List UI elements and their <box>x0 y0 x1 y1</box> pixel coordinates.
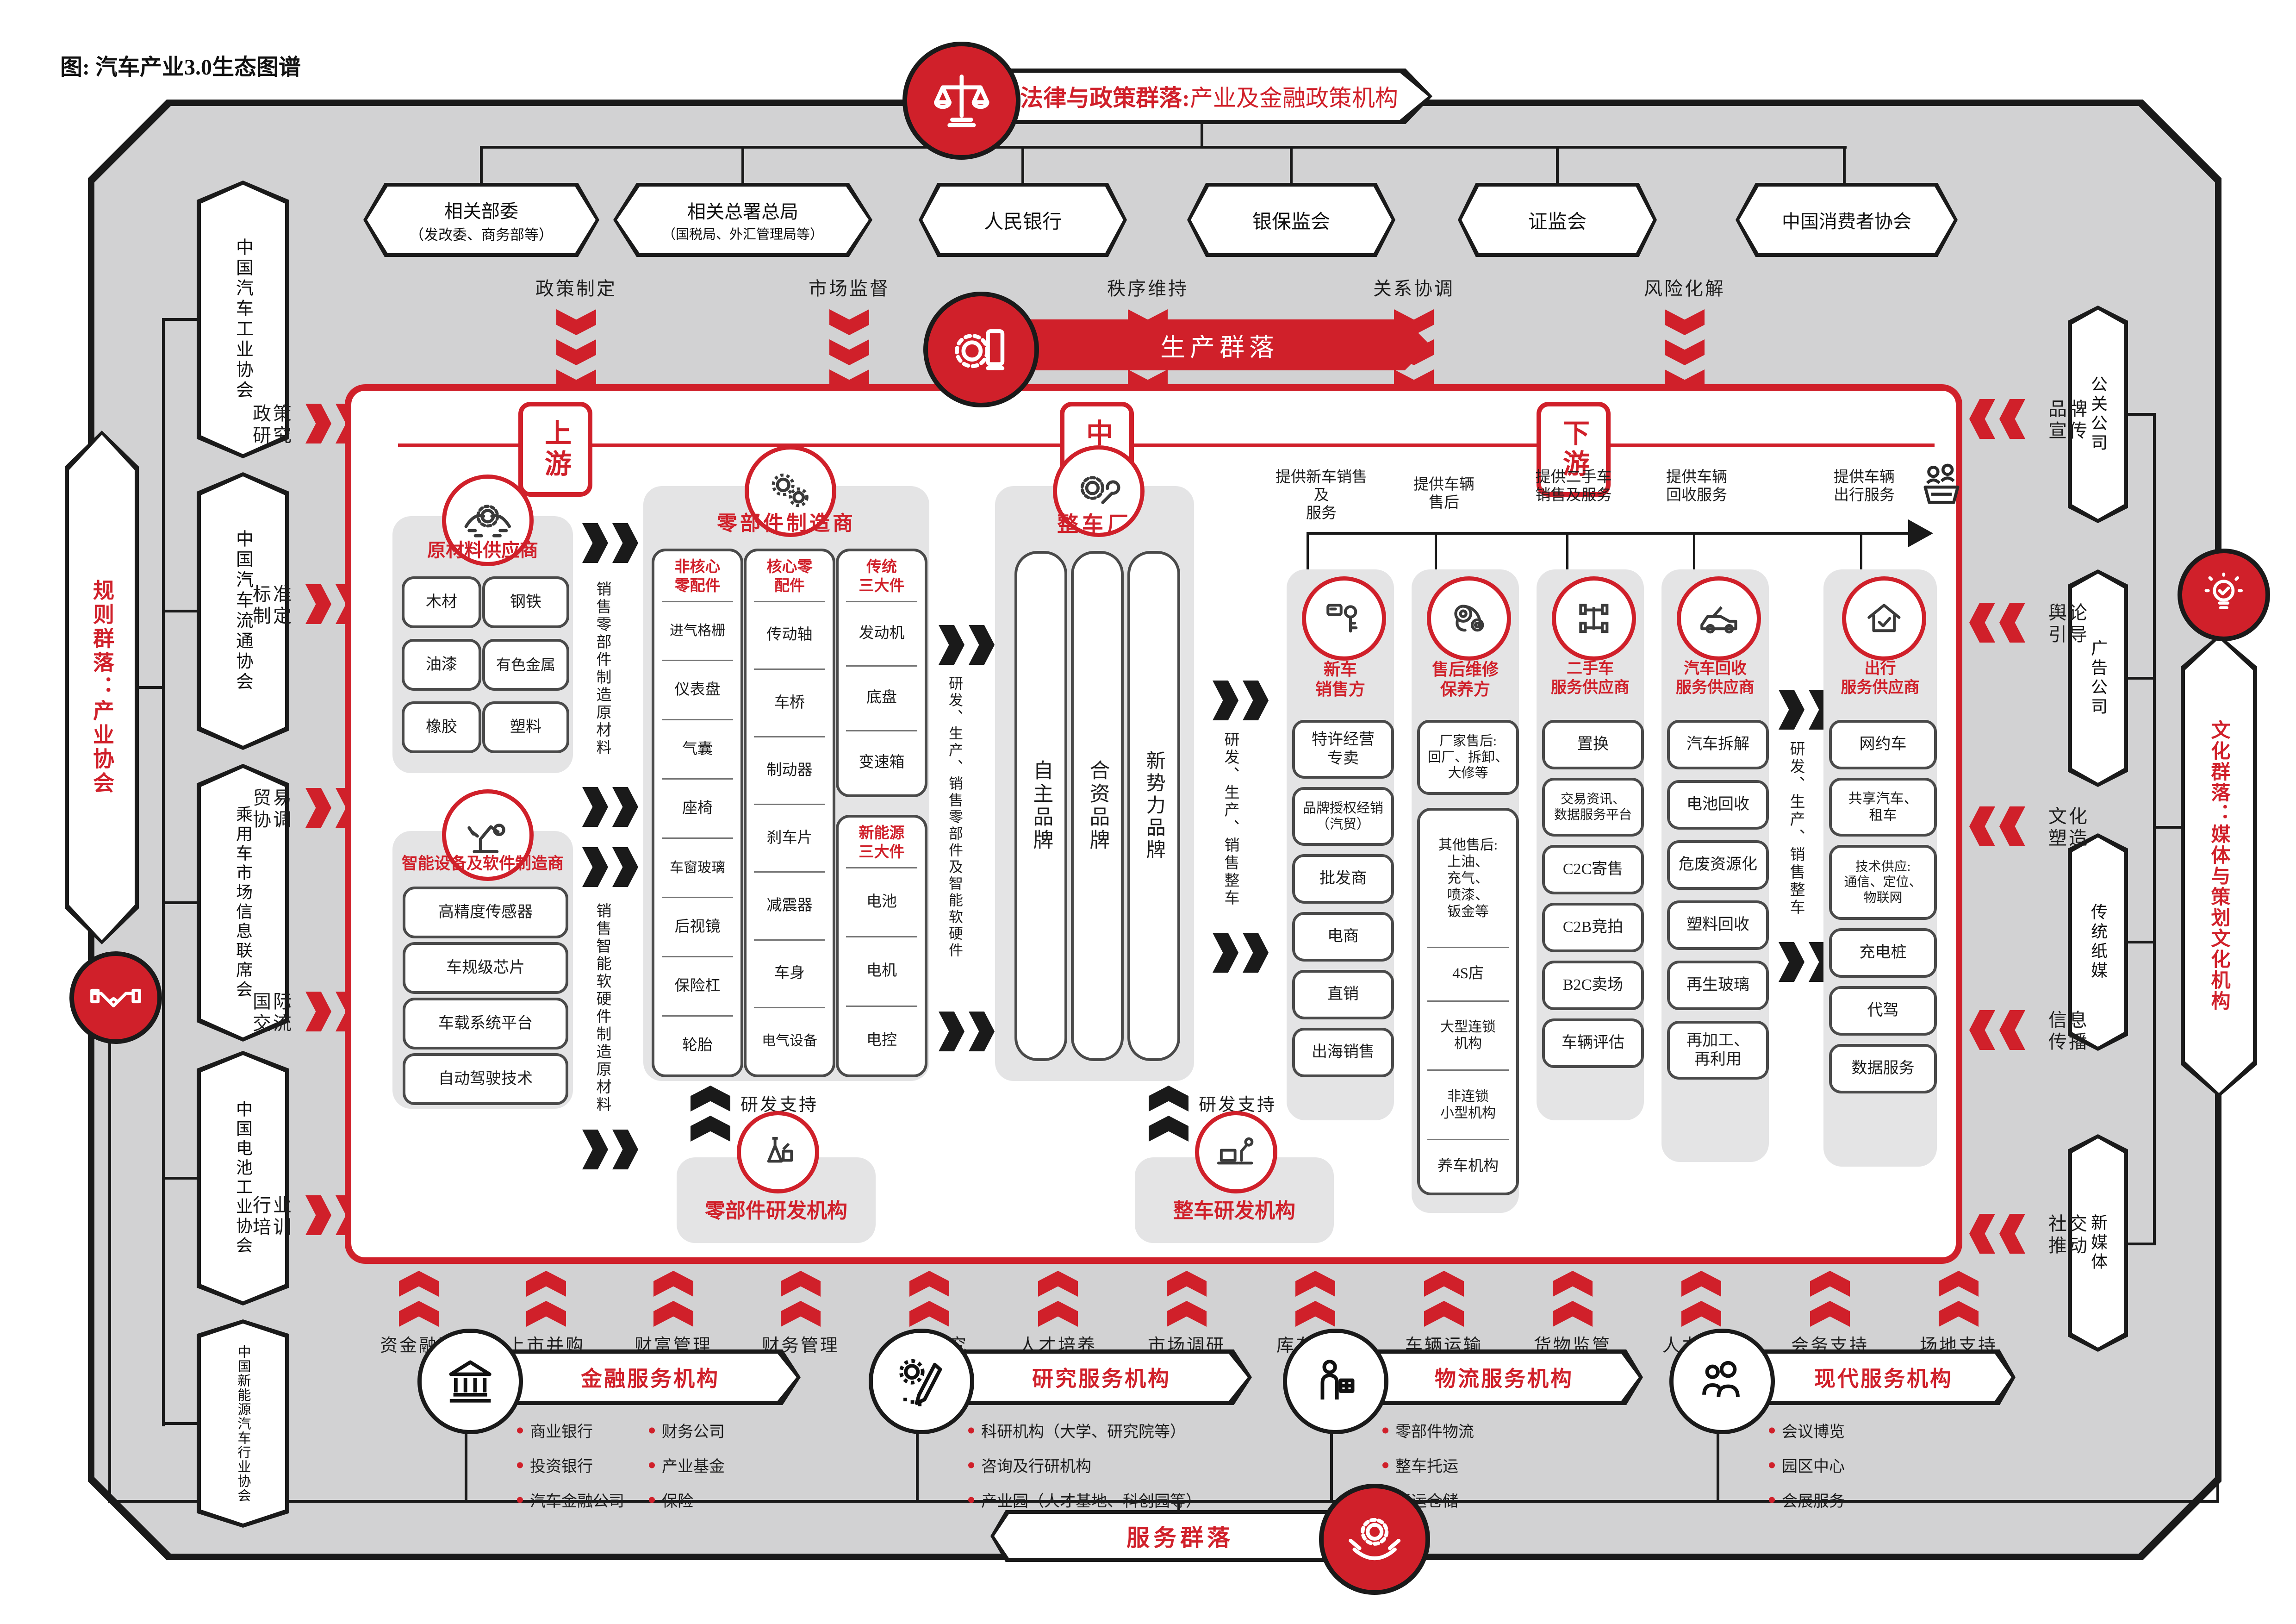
recycle-item: 电池回收 <box>1667 780 1769 830</box>
org-csrc: 证监会 <box>1458 183 1657 257</box>
research-title: 研究服务机构 <box>1032 1362 1171 1393</box>
finance-item: 汽车金融公司 <box>516 1482 624 1517</box>
oem-brand-jv: 合资品牌 <box>1071 551 1124 1061</box>
people-icon <box>1669 1329 1775 1434</box>
func-trade-coordination: 贸易 协调 <box>238 787 308 831</box>
scales-icon <box>902 42 1020 160</box>
smart-item: 高精度传感器 <box>403 887 568 938</box>
modern-item: 园区中心 <box>1768 1448 1845 1482</box>
recycle-item: 危废资源化 <box>1667 840 1769 890</box>
law-policy-title-rest: 产业及金融政策机构 <box>1190 80 1398 113</box>
arrow-left-icon <box>1969 1214 2025 1254</box>
parts-title: 零部件制造商 <box>643 512 929 536</box>
rules-banner-label: 规则群落：产业协会 <box>87 579 117 796</box>
org-peoples-bank: 人民银行 <box>919 183 1127 257</box>
parts-item: 减震器 <box>754 871 825 939</box>
parts-item: 传动轴 <box>754 601 825 668</box>
mobility-item: 共享汽车、 租车 <box>1829 778 1937 837</box>
oem-title: 整车厂 <box>995 512 1194 537</box>
flask-robot-icon <box>737 1111 819 1193</box>
research-item: 咨询及行研机构 <box>967 1448 1201 1482</box>
stage-upstream: 上游 <box>518 402 592 497</box>
newcar-item: 出海销售 <box>1292 1028 1394 1077</box>
parts-item: 底盘 <box>846 665 917 730</box>
org-label: 中国消费者协会 <box>1782 206 1911 233</box>
newcar-title: 新车 销售方 <box>1287 660 1394 700</box>
raw-item: 有色金属 <box>482 639 569 691</box>
parts-item: 车身 <box>754 939 825 1007</box>
law-policy-title-bold: 法律与政策群落: <box>1020 80 1190 113</box>
rules-cluster-banner: 规则群落：产业协会 <box>65 431 139 944</box>
func-market-supervision: 市场监督 <box>780 278 919 300</box>
func-risk-resolution: 风险化解 <box>1615 278 1754 300</box>
culture-cluster-banner: 文化群落：媒体与策划文化机构 <box>2181 634 2257 1097</box>
assoc-nev: 中国新能源汽车行业协会 <box>197 1319 289 1528</box>
parts-item: 轮胎 <box>662 1015 733 1074</box>
ds-annotation: 提供车辆 回收服务 <box>1650 468 1743 505</box>
production-banner: 生产群落 <box>1009 319 1430 370</box>
aftersales-item: 厂家售后: 回厂、拆卸、 大修等 <box>1417 720 1519 795</box>
raw-item: 橡胶 <box>402 701 481 753</box>
func-standard-setting: 标准 制定 <box>238 583 308 627</box>
ds-annotation: 提供二手车 销售及服务 <box>1523 468 1624 505</box>
usedcar-item: C2C寄售 <box>1542 845 1644 894</box>
arrow-up-icon <box>1149 1086 1188 1142</box>
media-label: 传统纸媒 <box>2086 903 2110 981</box>
parts-item: 车桥 <box>754 668 825 736</box>
raw-material-title: 原材料供应商 <box>392 539 573 562</box>
arrow-up-icon <box>1038 1271 1078 1327</box>
arrow-down-icon <box>829 309 869 395</box>
usedcar-item: 交易资讯、 数据服务平台 <box>1542 778 1644 837</box>
parts-col-nev3: 新能源 三大件 电池 电机 电控 <box>836 815 927 1077</box>
org-label: 人民银行 <box>984 206 1062 234</box>
research-item: 科研机构（大学、研究院等） <box>967 1413 1201 1448</box>
org-label: 银保监会 <box>1252 206 1330 234</box>
assoc-label: 乘用车市场信息联席会 <box>231 806 255 1000</box>
logistics-item: 整车托运 <box>1381 1448 1474 1482</box>
recycle-title: 汽车回收 服务供应商 <box>1661 660 1769 698</box>
arrow-up-icon <box>526 1271 566 1327</box>
parts-item: 后视镜 <box>662 897 733 956</box>
assoc-battery: 中国电池工业协会 <box>197 1051 289 1305</box>
ds-annotation: 提供车辆 售后 <box>1402 476 1486 512</box>
parts-item: 车窗玻璃 <box>662 837 733 897</box>
logistics-banner: 物流服务机构 <box>1365 1349 1643 1405</box>
finance-item: 商业银行 <box>516 1413 624 1448</box>
org-sublabel: （国税局、外汇管理局等） <box>662 224 823 243</box>
mobility-title: 出行 服务供应商 <box>1823 660 1937 698</box>
modern-banner: 现代服务机构 <box>1752 1349 2016 1405</box>
smart-equipment-title: 智能设备及软件制造商 <box>392 854 573 874</box>
usedcar-item: B2C卖场 <box>1542 961 1644 1010</box>
media-label: 广告公司 <box>2086 639 2110 717</box>
raw-item: 钢铁 <box>482 576 569 628</box>
parts-item: 进气格栅 <box>662 601 733 660</box>
page-title: 图: 汽车产业3.0生态图谱 <box>60 49 301 81</box>
law-policy-banner: 法律与政策群落: 产业及金融政策机构 <box>986 69 1432 124</box>
handshake-icon <box>69 951 162 1044</box>
org-ministries: 相关部委（发改委、商务部等） <box>363 183 599 257</box>
arrow-right-icon <box>939 625 995 665</box>
arrow-left-icon <box>1969 1010 2025 1050</box>
oem-brand-own: 自主品牌 <box>1014 551 1067 1061</box>
lightbulb-check-icon <box>2178 549 2270 641</box>
arrow-right-icon <box>582 523 638 563</box>
oem-rnd-title: 整车研发机构 <box>1135 1199 1334 1224</box>
newcar-item: 特许经营 专卖 <box>1292 720 1394 779</box>
parts-item: 电机 <box>846 936 917 1006</box>
recycle-item: 塑料回收 <box>1667 900 1769 950</box>
func-info-spread: 信息 传播 <box>2034 1009 2103 1053</box>
arrow-down-icon <box>556 309 596 395</box>
parts-item: 发动机 <box>846 601 917 666</box>
func-intl-exchange: 国际 交流 <box>238 991 308 1034</box>
aftersales-group-item: 4S店 <box>1427 947 1509 1000</box>
mobility-item: 代驾 <box>1829 986 1937 1036</box>
func-policy-research: 政策 研究 <box>238 403 308 446</box>
raw-item: 油漆 <box>402 639 481 691</box>
org-label: 相关总署总局 <box>687 197 798 224</box>
org-label: 证监会 <box>1528 206 1587 234</box>
flow-smart-label: 销售智能软硬件制造原材料 <box>591 903 613 1114</box>
func-relation-coordination: 关系协调 <box>1344 278 1483 300</box>
culture-banner-label: 文化群落：媒体与策划文化机构 <box>2205 720 2233 1012</box>
parts-item: 仪表盘 <box>662 660 733 719</box>
consumers-icon <box>1911 461 1972 512</box>
arrow-up-icon <box>1810 1271 1850 1327</box>
rnd-support-label: 研发支持 <box>740 1095 893 1116</box>
parts-item: 变速箱 <box>846 730 917 795</box>
service-banner-label: 服务群落 <box>1126 1519 1234 1553</box>
arrow-right-icon <box>582 847 638 887</box>
aftersales-group-item: 非连锁 小型机构 <box>1427 1069 1509 1139</box>
mobility-item: 数据服务 <box>1829 1044 1937 1093</box>
func-brand-promotion: 品牌 宣传 <box>2034 398 2103 442</box>
arrow-right-icon <box>1213 681 1269 720</box>
logistics-item: 零部件物流 <box>1381 1413 1474 1448</box>
parts-col-header: 传统 三大件 <box>839 551 925 601</box>
org-cbirc: 银保监会 <box>1187 183 1395 257</box>
mobility-item: 技术供应: 通信、定位、 物联网 <box>1829 845 1937 920</box>
arrow-up-icon <box>1939 1271 1979 1327</box>
parts-item: 气囊 <box>662 719 733 778</box>
hands-service-icon <box>1319 1484 1430 1595</box>
arrow-up-icon <box>909 1271 949 1327</box>
stage-label: 上游 <box>536 419 575 480</box>
chassis-icon <box>1552 576 1636 661</box>
newcar-item: 电商 <box>1292 912 1394 962</box>
modern-title: 现代服务机构 <box>1814 1362 1953 1393</box>
newcar-item: 直销 <box>1292 970 1394 1019</box>
parts-col-traditional3: 传统 三大件 发动机 底盘 变速箱 <box>836 549 927 797</box>
brand-label: 新势力品牌 <box>1142 750 1165 862</box>
aftersales-group-item: 其他售后: 上油、 充气、 喷漆、 钣金等 <box>1427 811 1509 947</box>
org-label: 相关部委 <box>444 196 518 223</box>
modern-item: 会议博览 <box>1768 1413 1845 1448</box>
oem-brand-newforce: 新势力品牌 <box>1127 551 1180 1061</box>
arrow-left-icon <box>1969 399 2025 439</box>
arrow-up-icon <box>691 1086 730 1142</box>
flow-ds-label: 研发、生产、销售整车 <box>1785 741 1807 917</box>
mobility-item: 网约车 <box>1829 720 1937 769</box>
arrow-right-icon <box>582 1130 638 1169</box>
func-policy-making: 政策制定 <box>507 278 646 300</box>
smart-item: 自动驾驶技术 <box>403 1053 568 1105</box>
ds-annotation: 提供新车销售及 服务 <box>1268 468 1375 523</box>
usedcar-title: 二手车 服务供应商 <box>1537 660 1644 698</box>
usedcar-item: C2B竞拍 <box>1542 903 1644 952</box>
arrow-right-icon <box>582 787 638 827</box>
smart-item: 车规级芯片 <box>403 942 568 994</box>
parts-rnd-title: 零部件研发机构 <box>677 1199 876 1224</box>
aftersales-group-item: 大型连锁 机构 <box>1427 1000 1509 1070</box>
belt-pulley-icon <box>1427 576 1511 661</box>
org-administrations: 相关总署总局（国税局、外汇管理局等） <box>613 183 872 257</box>
parts-col-header: 非核心 零配件 <box>654 551 740 601</box>
finance-item: 保险 <box>648 1482 725 1517</box>
usedcar-item: 车辆评估 <box>1542 1018 1644 1068</box>
laptop-robot-icon <box>1195 1111 1277 1193</box>
gear-pencil-icon <box>869 1329 974 1434</box>
arrow-right-icon <box>939 1012 995 1051</box>
aftersales-title: 售后维修 保养方 <box>1412 660 1519 700</box>
ecosystem-diagram: 图: 汽车产业3.0生态图谱 法律与政策群落: 产业及金融政策机构 <box>0 0 2296 1624</box>
func-industry-training: 行业 培训 <box>238 1194 308 1238</box>
courier-icon <box>1283 1329 1388 1434</box>
arrow-up-icon <box>1295 1271 1335 1327</box>
finance-banner: 金融服务机构 <box>500 1349 801 1405</box>
arrow-up-icon <box>1681 1271 1721 1327</box>
recycle-item: 再加工、 再利用 <box>1667 1021 1769 1080</box>
smart-item: 车载系统平台 <box>403 998 568 1049</box>
org-consumer-assoc: 中国消费者协会 <box>1736 183 1958 257</box>
arrow-left-icon <box>1969 603 2025 643</box>
brand-label: 合资品牌 <box>1085 760 1110 852</box>
aftersales-group-item: 养车机构 <box>1427 1139 1509 1193</box>
raw-item: 塑料 <box>482 701 569 753</box>
recycle-item: 汽车拆解 <box>1667 720 1769 769</box>
usedcar-item: 置换 <box>1542 720 1644 769</box>
newcar-item: 批发商 <box>1292 854 1394 904</box>
parts-col-core: 核心零 配件 传动轴 车桥 制动器 刹车片 减震器 车身 电气设备 <box>744 549 835 1077</box>
production-banner-label: 生产群落 <box>1160 327 1279 363</box>
arrow-up-icon <box>781 1271 821 1327</box>
newcar-item: 品牌授权经销 （汽贸） <box>1292 787 1394 846</box>
arrow-up-icon <box>1553 1271 1593 1327</box>
research-banner: 研究服务机构 <box>951 1349 1252 1405</box>
arrow-left-icon <box>1969 806 2025 846</box>
org-sublabel: （发改委、商务部等） <box>410 223 553 244</box>
mobility-item: 充电桩 <box>1829 928 1937 978</box>
parts-item: 刹车片 <box>754 804 825 871</box>
aftersales-group: 其他售后: 上油、 充气、 喷漆、 钣金等 4S店 大型连锁 机构 非连锁 小型… <box>1417 808 1519 1195</box>
finance-item: 产业基金 <box>648 1448 725 1482</box>
key-icon <box>1302 576 1386 661</box>
parts-item: 座椅 <box>662 778 733 837</box>
bank-icon <box>417 1329 523 1434</box>
recycle-item: 再生玻璃 <box>1667 961 1769 1010</box>
func-order-keeping: 秩序维持 <box>1078 278 1217 300</box>
func-social-push: 社交 推动 <box>2034 1213 2103 1256</box>
parts-col-header: 核心零 配件 <box>747 551 833 601</box>
func-culture-shaping: 文化 塑造 <box>2034 806 2103 849</box>
parts-col-noncore: 非核心 零配件 进气格栅 仪表盘 气囊 座椅 车窗玻璃 后视镜 保险杠 轮胎 <box>652 549 743 1077</box>
arrow-down-icon <box>1665 309 1705 395</box>
parts-item: 保险杠 <box>662 956 733 1015</box>
gear-document-icon <box>923 292 1039 407</box>
arrow-up-icon <box>1167 1271 1207 1327</box>
finance-title: 金融服务机构 <box>581 1362 720 1393</box>
flow-parts-label: 研发、生产、销售零部件及智能软硬件 <box>944 676 965 959</box>
parts-item: 制动器 <box>754 736 825 804</box>
parts-item: 电池 <box>846 867 917 937</box>
parts-item: 电气设备 <box>754 1007 825 1074</box>
arrow-up-icon <box>399 1271 439 1327</box>
ds-annotation: 提供车辆 出行服务 <box>1818 468 1910 505</box>
arrow-right-icon <box>1213 933 1269 973</box>
arrow-up-icon <box>1424 1271 1464 1327</box>
house-check-icon <box>1842 576 1926 661</box>
parts-col-header: 新能源 三大件 <box>839 818 925 867</box>
flow-oem-label: 研发、生产、销售整车 <box>1219 731 1241 907</box>
parts-item: 电控 <box>846 1006 917 1075</box>
assoc-label: 中国新能源汽车行业协会 <box>233 1345 253 1503</box>
car-recycle-icon <box>1677 576 1761 661</box>
finance-item: 投资银行 <box>516 1448 624 1482</box>
raw-item: 木材 <box>402 576 481 628</box>
brand-label: 自主品牌 <box>1029 760 1053 852</box>
modern-item: 会展服务 <box>1768 1482 1845 1517</box>
service-cluster-banner: 服务群落 <box>990 1510 1370 1562</box>
assoc-label: 中国汽车工业协会 <box>230 238 256 401</box>
logistics-title: 物流服务机构 <box>1435 1362 1574 1393</box>
arrow-up-icon <box>653 1271 693 1327</box>
flow-raw-label: 销售零部件制造原材料 <box>591 581 613 757</box>
finance-item: 财务公司 <box>648 1413 725 1448</box>
func-opinion-guidance: 舆论 引导 <box>2034 602 2103 645</box>
